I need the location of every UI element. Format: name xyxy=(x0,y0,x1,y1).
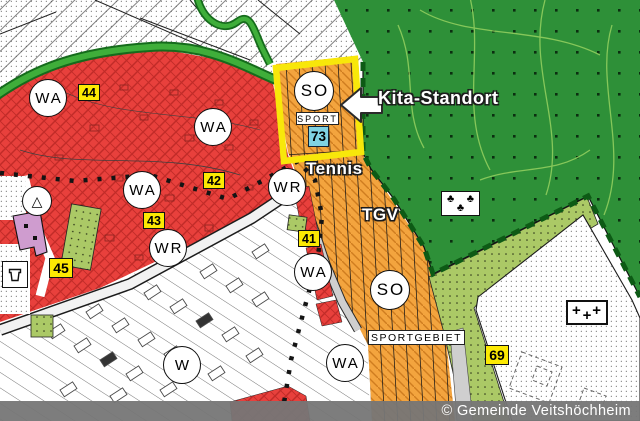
zone-circle-wr: WR xyxy=(268,168,306,206)
playground-symbol-icon: ♣ ♣ ♣ xyxy=(441,191,480,216)
plus-glyph: + xyxy=(583,308,592,323)
label-sport: SPORT xyxy=(296,112,339,125)
parcel-badge-69: 69 xyxy=(485,345,509,365)
zone-circle-wr: WR xyxy=(149,229,187,267)
zone-circle-wa: WA xyxy=(326,344,364,382)
clover-glyph: ♣ xyxy=(447,194,454,205)
site-number-badge: 73 xyxy=(308,126,329,147)
clover-glyph: ♣ xyxy=(467,194,474,205)
map-canvas xyxy=(0,0,640,421)
parcel-badge-41: 41 xyxy=(298,230,320,247)
copyright-text: © Gemeinde Veitshöchheim xyxy=(441,403,631,419)
pot-glyph xyxy=(6,266,24,284)
plus-glyph: + xyxy=(572,303,581,318)
zone-circle-wa: WA xyxy=(123,171,161,209)
zone-circle-so-kita: SO xyxy=(294,71,334,111)
clover-glyph: ♣ xyxy=(457,203,464,214)
triangle-symbol-icon: △ xyxy=(22,186,52,216)
zone-circle-w: W xyxy=(163,346,201,384)
parcel-badge-43: 43 xyxy=(143,212,165,229)
plus-symbol-icon: + + + xyxy=(566,300,608,325)
kita-standort-callout: Kita-Standort xyxy=(378,88,499,109)
label-tgv: TGV xyxy=(362,205,398,225)
monument-icon xyxy=(2,261,28,288)
parcel-badge-45: 45 xyxy=(49,258,73,278)
zone-circle-wa: WA xyxy=(294,253,332,291)
label-sportgebiet: SPORTGEBIET xyxy=(368,330,465,345)
zone-circle-wa: WA xyxy=(29,79,67,117)
plus-glyph: + xyxy=(592,303,601,318)
zoning-map: WA WA WA WR WR WA WA W SO SO 44 42 43 45… xyxy=(0,0,640,421)
copyright-bar: © Gemeinde Veitshöchheim xyxy=(0,401,640,421)
label-tennis: Tennis xyxy=(306,159,363,179)
parcel-badge-44: 44 xyxy=(78,84,100,101)
zone-circle-so: SO xyxy=(370,270,410,310)
zone-circle-wa: WA xyxy=(194,108,232,146)
parcel-badge-42: 42 xyxy=(203,172,225,189)
triangle-glyph: △ xyxy=(32,193,43,210)
